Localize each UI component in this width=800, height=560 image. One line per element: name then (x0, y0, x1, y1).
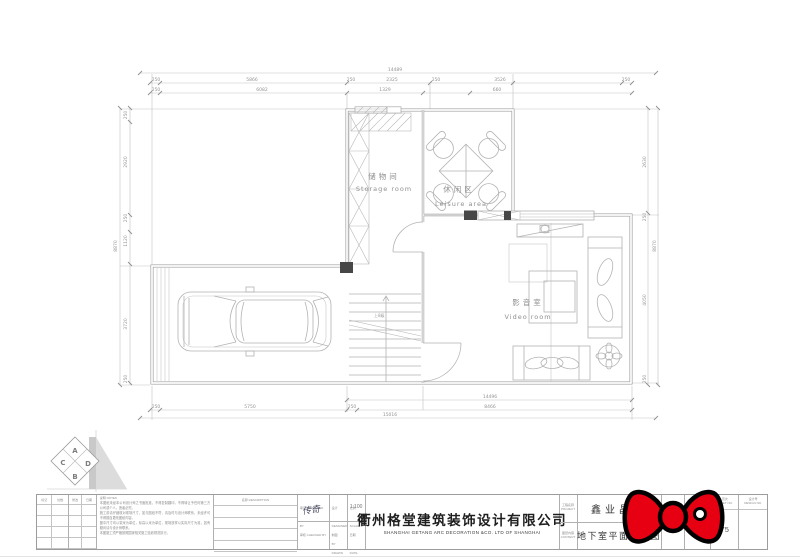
round-side-table (596, 343, 622, 369)
logo-letter-d: D (85, 460, 91, 468)
drawing-sheet: 14489 250 5866 250 2325 250 3526 250 250… (0, 0, 800, 560)
floor-plan-canvas: 14489 250 5866 250 2325 250 3526 250 250… (0, 0, 800, 560)
video-room-window (478, 211, 594, 220)
dimension-texts: 14489 250 5866 250 2325 250 3526 250 250… (113, 67, 658, 418)
svg-text:2630: 2630 (642, 156, 648, 168)
svg-text:250: 250 (123, 375, 129, 384)
svg-text:8870: 8870 (113, 240, 119, 252)
storage-room-label-en: Storage room (356, 185, 412, 193)
garage-door-tracks (157, 268, 169, 381)
svg-text:1120: 1120 (123, 235, 129, 247)
design-column: 设计 DESIGNED BY 制图 DRAWN BY (330, 495, 348, 549)
hall-door (423, 343, 461, 381)
svg-text:250: 250 (432, 77, 441, 83)
leisure-area-label-cn: 休闲区 (443, 184, 475, 194)
sheet-bottom-edge (0, 556, 800, 557)
project-name: 鑫业晶典 (591, 501, 647, 516)
revision-table-2: 修改日期 (69, 495, 97, 549)
svg-text:6082: 6082 (256, 87, 268, 93)
title-block: 标记处数 修改日期 说明 NOTES 本图纸未经本公司设计师之书面批准，不得复制… (36, 494, 768, 550)
svg-text:8466: 8466 (484, 404, 496, 410)
svg-text:5866: 5866 (246, 77, 258, 83)
svg-text:250: 250 (642, 213, 648, 222)
svg-text:14489: 14489 (388, 67, 402, 73)
stair-direction-label: 上8级 (374, 312, 385, 318)
svg-text:250: 250 (642, 375, 648, 384)
exterior-walls (152, 110, 631, 383)
svg-text:250: 250 (347, 77, 356, 83)
svg-text:250: 250 (152, 404, 161, 410)
svg-text:8870: 8870 (652, 240, 658, 252)
hatched-cabinet (351, 113, 411, 131)
note-line: 本图施工须严格按照国家相关施工验收规范执行。 (100, 531, 210, 536)
svg-text:5750: 5750 (244, 404, 256, 410)
description-column: 名称 DESCRIPTION (214, 495, 298, 549)
svg-text:660: 660 (493, 87, 502, 93)
svg-text:14496: 14496 (483, 394, 497, 400)
svg-text:4050: 4050 (642, 294, 648, 306)
firm-logo: A C D B (47, 430, 127, 492)
storage-door (393, 222, 423, 252)
coffee-tables (509, 244, 577, 323)
drawing-number: F-04 (685, 510, 710, 549)
date-label: 日期 DATE (350, 533, 358, 555)
svg-text:2325: 2325 (386, 77, 398, 83)
bottom-sofa (513, 346, 590, 380)
sheet-number: 75 (711, 510, 738, 549)
note-line: 图中尺寸均以毫米为单位，标高以米为单位，现场放样以实际尺寸为准，如有疑问请与设计… (100, 521, 210, 531)
spare-column (662, 495, 686, 549)
approval-column: 审定 APPROVED BY 传奇 审核 CHECKED BY (298, 495, 330, 549)
svg-text:3720: 3720 (123, 318, 129, 330)
svg-text:250: 250 (152, 77, 161, 83)
svg-text:250: 250 (622, 77, 631, 83)
storage-room-label-cn: 储物间 (368, 171, 400, 181)
checked-label: 审核 CHECKED BY (300, 533, 326, 537)
note-line: 施工前请仔细核对现场尺寸，如与图纸不符，请及时与设计师联系，未经许可不得擅自更改… (100, 511, 210, 521)
svg-text:15016: 15016 (383, 412, 397, 418)
logo-letter-a: A (72, 447, 78, 455)
company-block: 衢州格堂建筑装饰设计有限公司 SHANGHAI GETANG ARC DECOR… (366, 495, 560, 549)
revision-table-1: 标记处数 (37, 495, 69, 549)
svg-text:250: 250 (152, 87, 161, 93)
storage-window (355, 107, 401, 113)
approver-signature: 传奇 (301, 502, 321, 517)
svg-text:250: 250 (123, 214, 129, 223)
design-no-column: 设计号DESIGN NO. (739, 495, 767, 549)
leisure-area-label-en: Leisure area (435, 200, 487, 208)
car-top-view (178, 287, 331, 356)
notes-block: 说明 NOTES 本图纸未经本公司设计师之书面批准，不得复制翻印，不得转让予任何… (97, 495, 214, 549)
company-name-cn: 衢州格堂建筑装饰设计有限公司 (357, 509, 567, 529)
dwg-no-column: 图号DWG NO. F-04 (685, 495, 711, 549)
sheet-no-column: 页次SHEET NO. 75 (711, 495, 739, 549)
svg-text:3526: 3526 (494, 77, 506, 83)
video-room-label-en: Video room (504, 313, 551, 321)
logo-letter-c: C (60, 459, 65, 467)
drawn-label: 制图 DRAWN BY (332, 533, 343, 560)
note-line: 本图纸未经本公司设计师之书面批准，不得复制翻印，不得转让予任何第三方公司或个人，… (100, 501, 210, 511)
description-header: 名称 DESCRIPTION (214, 495, 297, 506)
staircase: 上8级 (349, 294, 421, 382)
interior-walls (423, 110, 513, 383)
projection-cabinet (517, 224, 583, 237)
project-labels: 工程名称PROJECT 图纸内容CONTENT (560, 495, 578, 549)
svg-text:2920: 2920 (123, 156, 129, 168)
svg-text:1329: 1329 (379, 87, 391, 93)
right-sofa (588, 237, 622, 338)
svg-text:250: 250 (123, 111, 129, 120)
svg-text:250: 250 (348, 404, 357, 410)
video-room-label-cn: 影音室 (512, 297, 544, 307)
drawing-title: 地下室平面布置图 (577, 529, 661, 542)
company-name-en: SHANGHAI GETANG ARC DECORATION &CO. LTD … (384, 530, 541, 535)
logo-letter-b: B (72, 473, 77, 481)
project-titles: 鑫业晶典 地下室平面布置图 (578, 495, 662, 549)
